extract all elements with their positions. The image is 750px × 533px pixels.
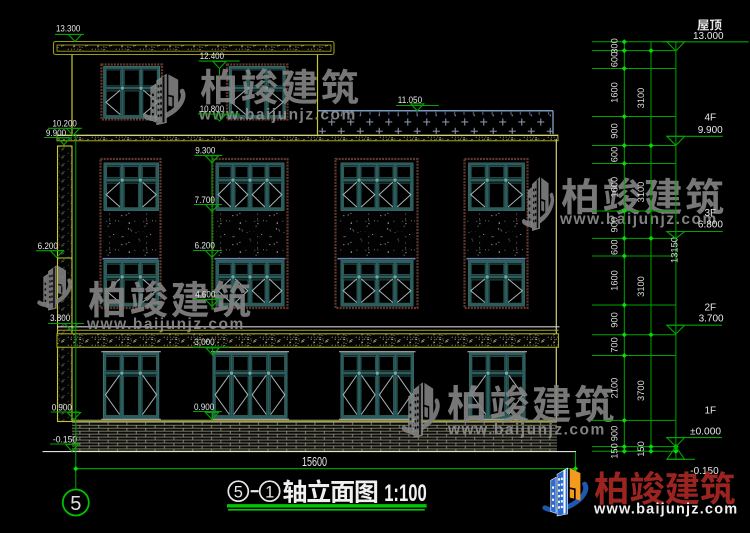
svg-text:150: 150 <box>636 441 646 457</box>
svg-text:6.200: 6.200 <box>195 241 215 251</box>
svg-text:2F: 2F <box>705 303 717 314</box>
svg-text:3.800: 3.800 <box>50 313 70 323</box>
svg-text:9.900: 9.900 <box>698 125 723 136</box>
svg-text:www.baijunjz.com: www.baijunjz.com <box>593 502 738 518</box>
svg-text:±0.000: ±0.000 <box>690 427 722 438</box>
svg-text:3.000: 3.000 <box>194 337 214 347</box>
svg-text:10.800: 10.800 <box>200 104 224 114</box>
svg-text:600: 600 <box>610 239 620 255</box>
svg-text:900: 900 <box>610 426 620 442</box>
svg-text:4.600: 4.600 <box>195 290 215 300</box>
svg-text:1600: 1600 <box>610 270 620 291</box>
svg-text:3F: 3F <box>705 208 717 219</box>
svg-text:13.000: 13.000 <box>693 31 724 42</box>
svg-text:3700: 3700 <box>636 380 646 401</box>
svg-text:900: 900 <box>610 217 620 233</box>
svg-text:600: 600 <box>610 52 620 68</box>
svg-text:1600: 1600 <box>610 177 620 198</box>
svg-text:1:100: 1:100 <box>384 480 427 507</box>
svg-text:900: 900 <box>610 312 620 328</box>
svg-text:1600: 1600 <box>610 82 620 103</box>
svg-text:9.300: 9.300 <box>195 146 215 156</box>
svg-text:5: 5 <box>234 484 243 502</box>
svg-text:10.200: 10.200 <box>53 119 77 129</box>
svg-text:www.baijunjz.com: www.baijunjz.com <box>559 211 718 228</box>
svg-text:700: 700 <box>610 337 620 353</box>
svg-text:1: 1 <box>265 484 274 502</box>
svg-text:7.700: 7.700 <box>195 195 215 205</box>
svg-text:1F: 1F <box>705 406 717 417</box>
svg-text:15600: 15600 <box>302 455 327 469</box>
svg-text:0.900: 0.900 <box>52 403 72 413</box>
svg-text:3.700: 3.700 <box>699 314 724 325</box>
svg-text:600: 600 <box>610 147 620 163</box>
svg-text:9.900: 9.900 <box>46 128 66 138</box>
svg-text:6.800: 6.800 <box>698 220 723 231</box>
svg-text:www.baijunjz.com: www.baijunjz.com <box>86 316 245 333</box>
svg-text:2100: 2100 <box>610 378 620 399</box>
svg-text:3100: 3100 <box>636 88 646 109</box>
svg-text:13.300: 13.300 <box>56 24 80 34</box>
svg-text:5: 5 <box>70 493 81 515</box>
svg-text:www.baijunjz.com: www.baijunjz.com <box>447 422 606 439</box>
svg-text:4F: 4F <box>705 112 717 123</box>
svg-text:-0.150: -0.150 <box>53 435 77 445</box>
svg-text:3100: 3100 <box>636 276 646 297</box>
svg-text:0.900: 0.900 <box>194 402 214 412</box>
svg-text:13150: 13150 <box>670 237 680 263</box>
svg-text:300: 300 <box>610 38 620 54</box>
svg-text:3100: 3100 <box>636 182 646 203</box>
svg-text:150: 150 <box>610 443 620 459</box>
svg-text:12.400: 12.400 <box>200 51 224 61</box>
svg-text:900: 900 <box>610 123 620 139</box>
svg-text:6.200: 6.200 <box>38 241 58 251</box>
